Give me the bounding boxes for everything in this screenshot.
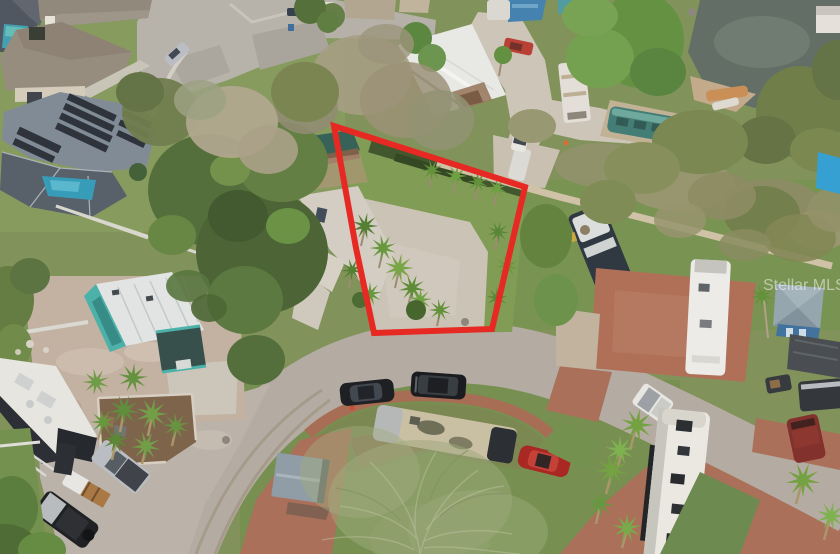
svg-text:Stellar MLS: Stellar MLS (763, 277, 840, 294)
